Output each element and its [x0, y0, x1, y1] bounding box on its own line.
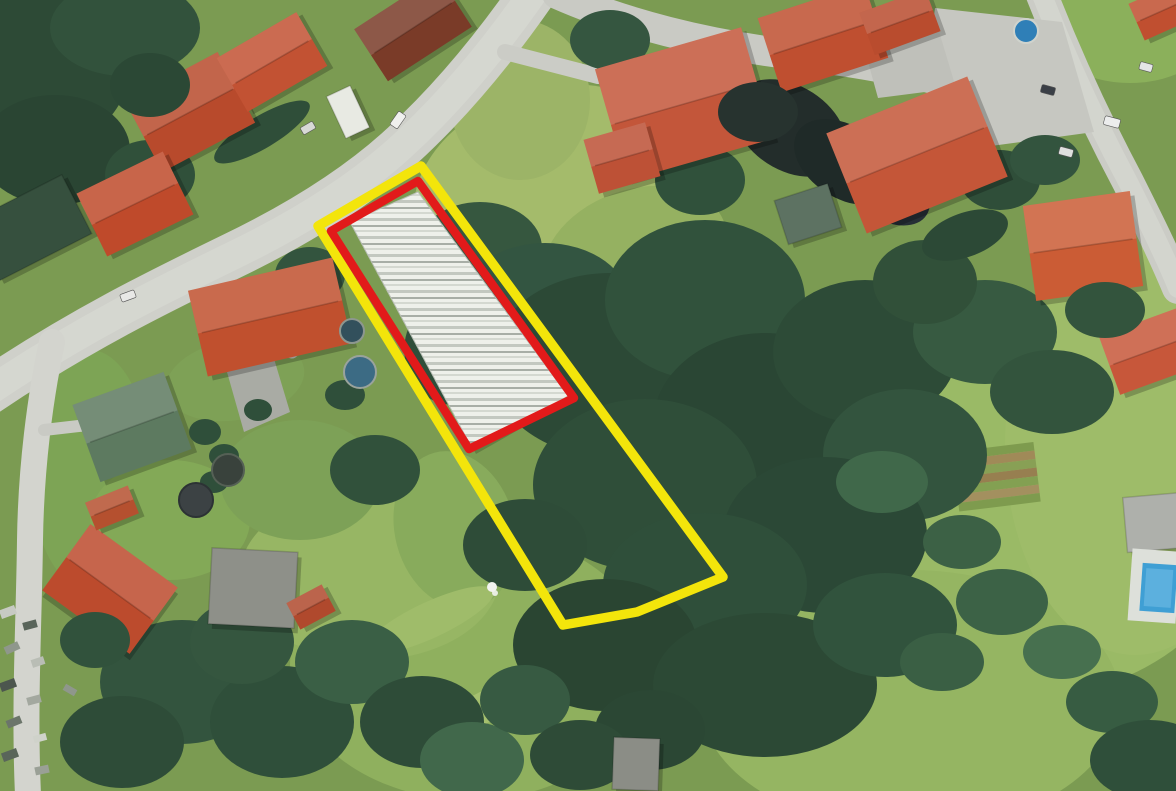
tree-canopy: [110, 53, 190, 117]
tree-canopy: [463, 499, 587, 591]
tree-canopy: [836, 451, 928, 513]
aerial-photo-canvas: [0, 0, 1176, 791]
pool-house-roof: [1123, 492, 1176, 553]
tree-canopy: [1010, 135, 1080, 185]
flat-building-roof: [208, 548, 298, 628]
bush: [189, 419, 221, 445]
round-pool: [340, 319, 364, 343]
tree-canopy: [60, 612, 130, 668]
tree-canopy: [1023, 625, 1101, 679]
round-pool: [344, 356, 376, 388]
pool-water-highlight: [1144, 568, 1174, 608]
flat-building: [208, 548, 302, 634]
tree-canopy: [718, 82, 798, 142]
shed-roof: [612, 737, 660, 791]
small-pool: [1014, 19, 1038, 43]
tree-canopy: [990, 350, 1114, 434]
aerial-photo: [0, 0, 1176, 791]
tree-canopy: [1065, 282, 1145, 338]
tree-canopy: [923, 515, 1001, 569]
swimming-pool: [1139, 563, 1176, 613]
pool-house: [1123, 491, 1176, 557]
bush: [244, 399, 272, 421]
parasol: [179, 483, 213, 517]
tree-canopy: [956, 569, 1048, 635]
tree-canopy: [330, 435, 420, 505]
white-object: [492, 590, 498, 596]
tree-canopy: [900, 633, 984, 691]
shed: [612, 737, 664, 791]
tree-canopy: [60, 696, 184, 788]
round-pool: [212, 454, 244, 486]
